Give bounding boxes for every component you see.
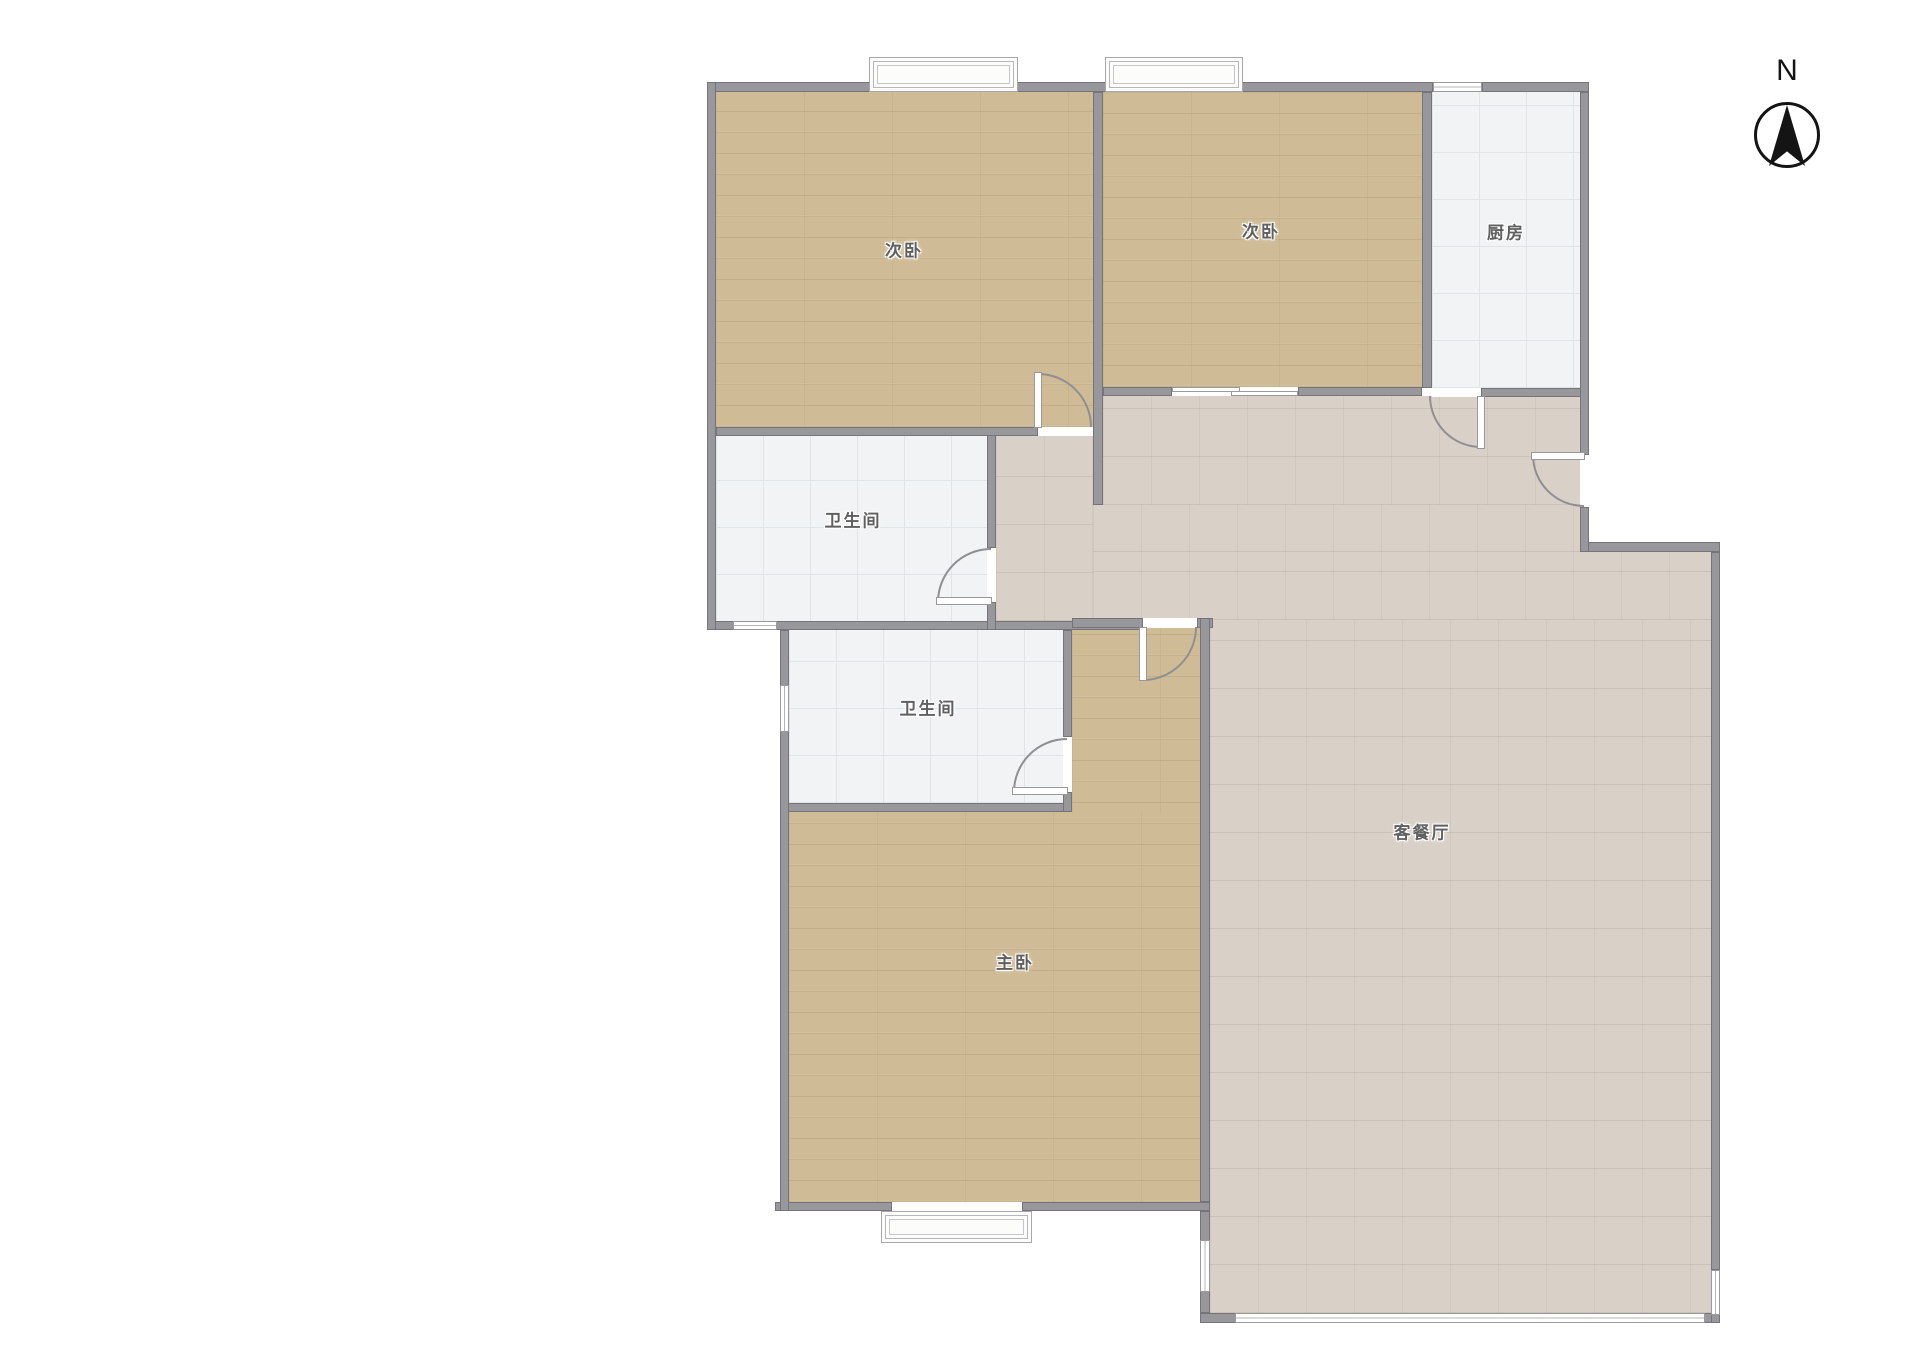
- door-leaf-master: [1139, 627, 1147, 681]
- wall-right-outer: [1711, 552, 1720, 1270]
- room-label-bathroom-2: 卫生间: [900, 695, 957, 720]
- floor-living-a: [1103, 396, 1580, 505]
- wall-top-3: [1240, 82, 1433, 92]
- wall-master-right: [1200, 618, 1210, 1202]
- window-bathroom1: [733, 621, 777, 630]
- window-bathroom2: [780, 685, 789, 732]
- room-label-bathroom-1: 卫生间: [825, 507, 882, 532]
- wall-bathroom1-right-a: [987, 435, 996, 548]
- wall-right-upper: [1580, 92, 1589, 455]
- bay-window-bedroom2: [1105, 57, 1243, 92]
- wall-left-outer: [707, 82, 716, 630]
- door-leaf-bedroom1: [1034, 372, 1042, 428]
- wall-master-bottom-l: [775, 1202, 892, 1211]
- window-living-right: [1711, 1270, 1720, 1315]
- room-label-bedroom-1: 次卧: [885, 237, 923, 262]
- floor-living-d: [1210, 620, 1711, 1313]
- wall-bed2-kitchen: [1422, 92, 1432, 388]
- wall-divider: [1093, 92, 1103, 505]
- door-leaf-kitchen: [1477, 396, 1485, 449]
- wall-top-4: [1482, 82, 1589, 92]
- window-kitchen-top: [1433, 82, 1482, 92]
- wall-step: [1580, 542, 1720, 552]
- room-label-bedroom-2: 次卧: [1242, 218, 1280, 243]
- wall-bathroom2-right-a: [1063, 630, 1072, 737]
- window-living-west: [1200, 1240, 1210, 1292]
- floor-master-b: [789, 812, 1200, 1202]
- window-living-bottom: [1235, 1313, 1705, 1323]
- wall-master-top: [1072, 618, 1143, 628]
- room-label-master-bedroom: 主卧: [996, 949, 1034, 974]
- wall-bedroom2-bottom-l: [1103, 387, 1172, 396]
- door-leaf-bath1: [936, 597, 992, 605]
- wall-top-2: [1015, 82, 1108, 92]
- room-label-kitchen: 厨房: [1487, 219, 1525, 244]
- floor-living-b: [1093, 505, 1580, 552]
- wall-bathroom2-right-b: [1063, 792, 1072, 812]
- sliding-panel-2: [1231, 391, 1298, 396]
- sliding-panel-1: [1172, 387, 1240, 392]
- door-leaf-bath2: [1012, 787, 1068, 795]
- wall-master-bottom-r: [1022, 1202, 1210, 1211]
- threshold-bedroom1-door: [1038, 427, 1092, 436]
- floor-living-c: [1093, 552, 1711, 620]
- wall-kitchen-bottom: [1481, 388, 1589, 397]
- compass-north-label: N: [1776, 54, 1798, 88]
- floor-corridor: [996, 436, 1093, 621]
- bay-window-bedroom1: [869, 57, 1018, 92]
- bay-window-master: [881, 1211, 1032, 1243]
- floor-plan: 次卧次卧厨房卫生间卫生间主卧客餐厅N: [0, 0, 1920, 1361]
- wall-bedroom2-bottom-r: [1298, 387, 1422, 396]
- wall-bathroom2-bottom: [780, 803, 1072, 812]
- room-label-living-dining: 客餐厅: [1394, 819, 1451, 844]
- wall-right-stub: [1580, 507, 1589, 552]
- wall-bathroom1-right-b: [987, 602, 996, 630]
- wall-top-1: [707, 82, 872, 92]
- door-leaf-entry: [1531, 452, 1585, 460]
